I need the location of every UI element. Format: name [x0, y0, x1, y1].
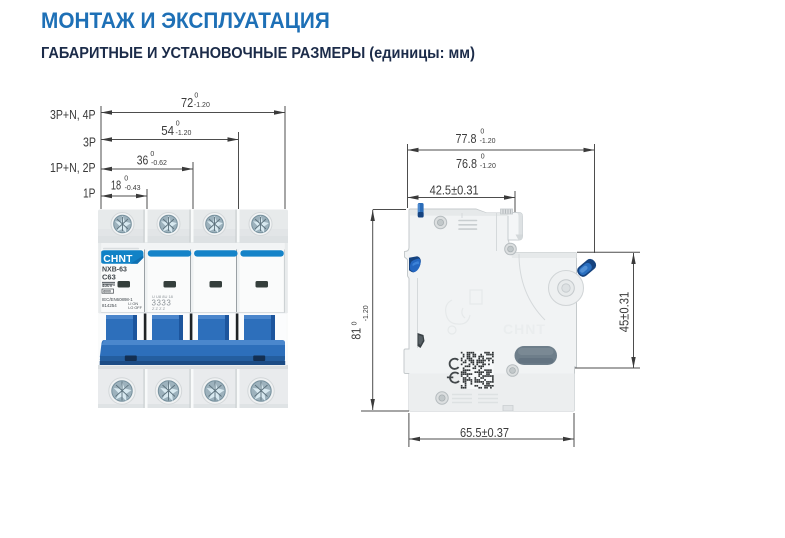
- svg-text:18: 18: [111, 178, 121, 193]
- svg-text:81: 81: [349, 328, 364, 340]
- svg-text:3P: 3P: [83, 135, 96, 149]
- svg-text:54: 54: [161, 123, 174, 138]
- svg-text:65.5±0.37: 65.5±0.37: [460, 425, 509, 440]
- svg-text:400V~: 400V~: [102, 283, 116, 288]
- svg-text:0: 0: [194, 93, 198, 100]
- svg-text:CHNT: CHNT: [103, 254, 133, 265]
- svg-text:72: 72: [181, 95, 193, 110]
- svg-text:0: 0: [176, 121, 180, 128]
- svg-text:0: 0: [480, 129, 484, 136]
- svg-text:0: 0: [352, 321, 359, 325]
- svg-text:Z Z Z Z: Z Z Z Z: [152, 306, 166, 311]
- svg-text:-0.43: -0.43: [125, 185, 141, 192]
- svg-text:-0.62: -0.62: [151, 160, 167, 167]
- svg-text:1P: 1P: [83, 187, 96, 201]
- svg-text:45±0.31: 45±0.31: [616, 292, 631, 333]
- svg-text:76.8: 76.8: [456, 156, 477, 171]
- svg-text:77.8: 77.8: [456, 131, 477, 146]
- svg-text:-1.20: -1.20: [480, 138, 496, 145]
- svg-text:6000: 6000: [103, 289, 111, 293]
- svg-text:0: 0: [481, 154, 485, 161]
- svg-text:-1.20: -1.20: [363, 305, 370, 321]
- svg-text:814254: 814254: [102, 303, 117, 308]
- svg-text:-1.20: -1.20: [480, 163, 496, 170]
- svg-text:C63: C63: [102, 273, 116, 282]
- svg-text:CHNT: CHNT: [503, 321, 546, 337]
- svg-text:0: 0: [150, 151, 154, 158]
- svg-text:-1.20: -1.20: [194, 102, 210, 109]
- svg-text:I-O OFF: I-O OFF: [128, 306, 143, 310]
- svg-text:-1.20: -1.20: [176, 130, 192, 137]
- svg-text:42.5±0.31: 42.5±0.31: [430, 183, 479, 198]
- svg-text:1P+N, 2P: 1P+N, 2P: [50, 161, 96, 175]
- svg-text:36: 36: [137, 153, 149, 168]
- svg-text:3P+N, 4P: 3P+N, 4P: [50, 108, 96, 122]
- svg-text:0: 0: [124, 176, 128, 183]
